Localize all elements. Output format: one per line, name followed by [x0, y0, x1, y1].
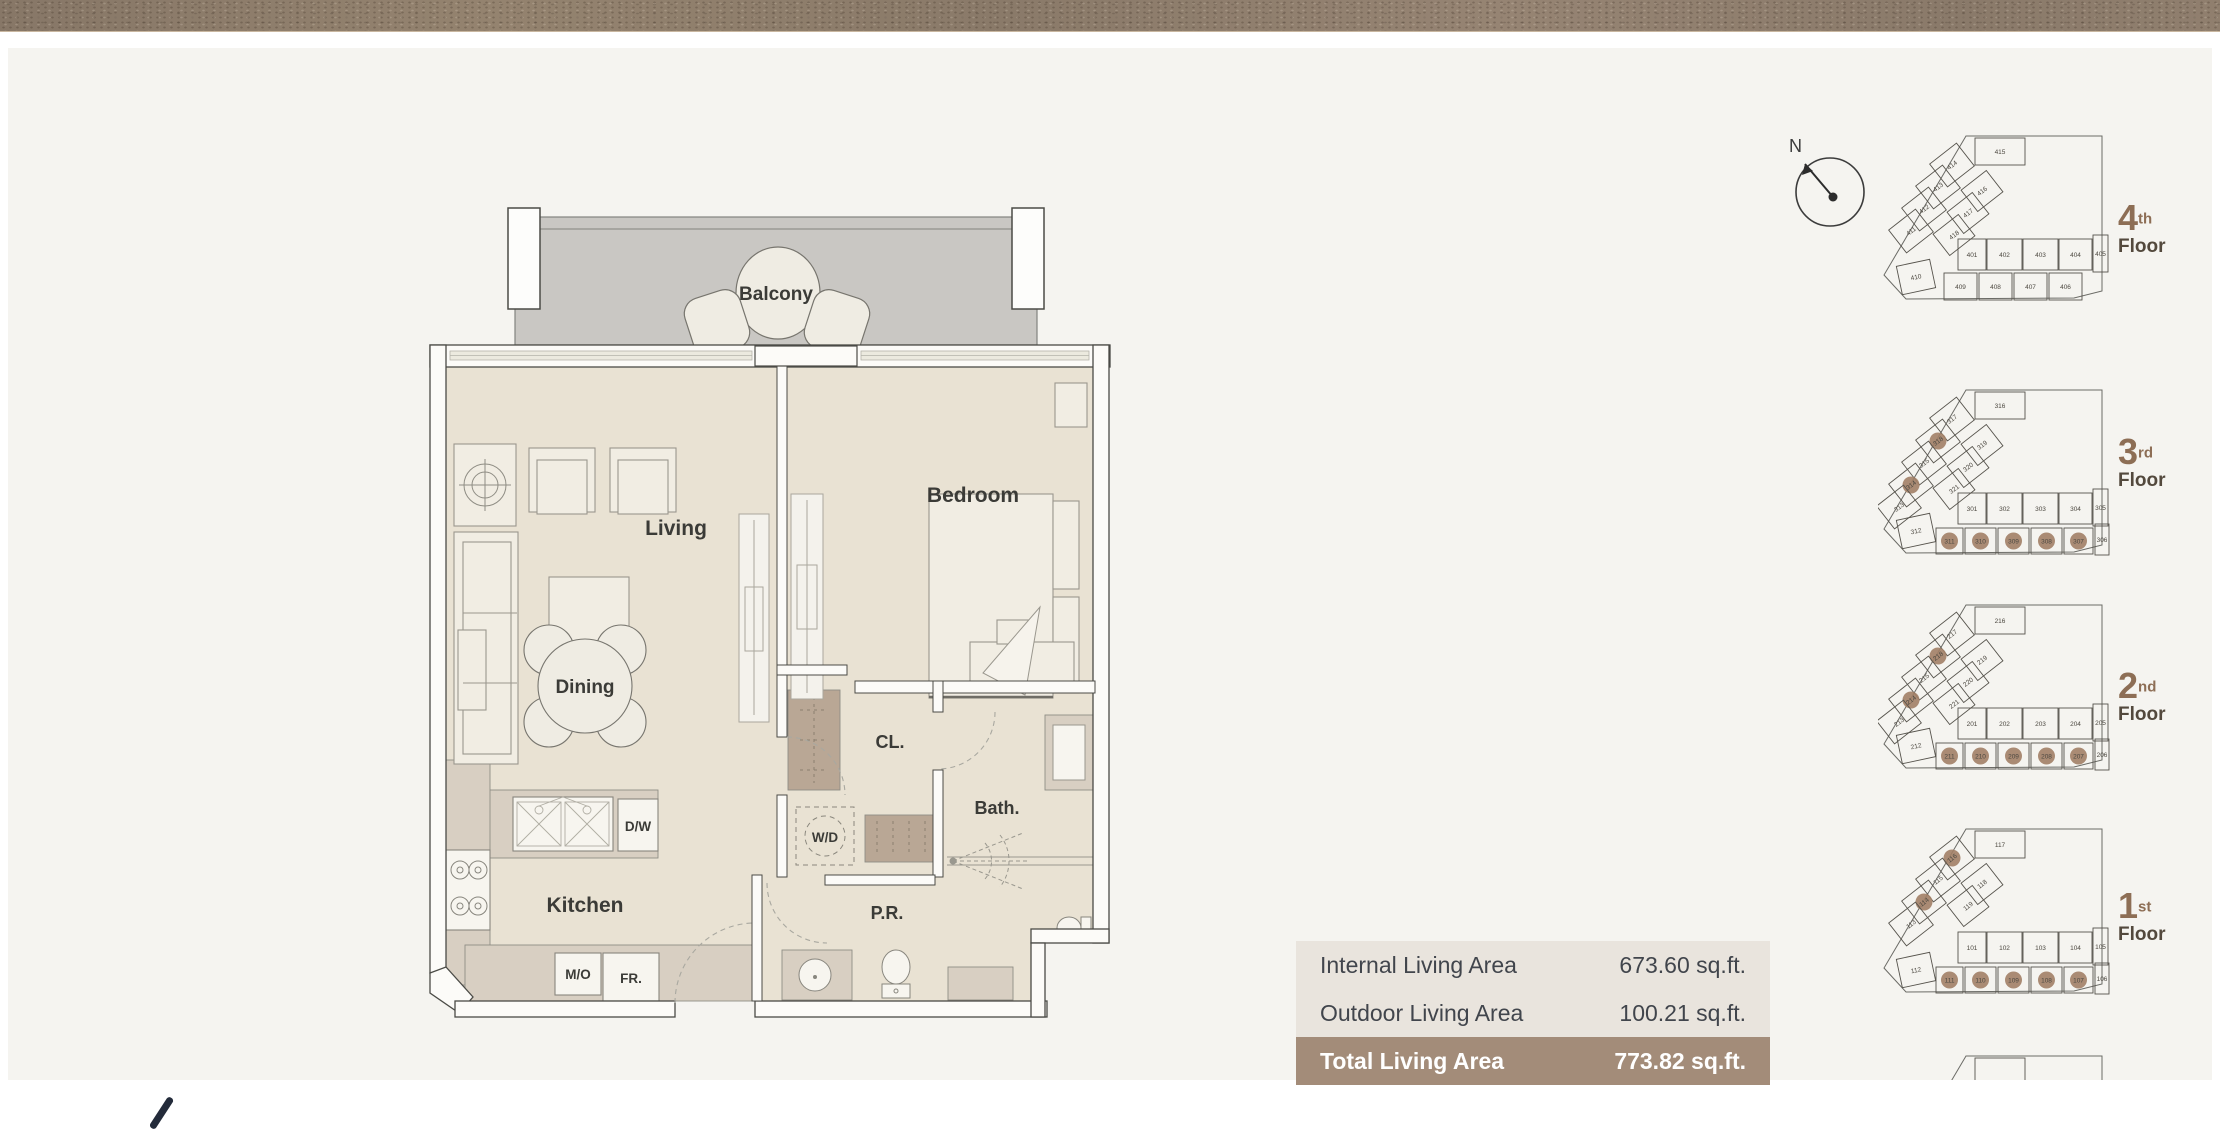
key-plan-unit: 211 [1936, 743, 1963, 769]
svg-text:216: 216 [1995, 618, 2006, 625]
key-plan-floor-partial [1878, 1048, 2110, 1080]
key-plan-unit: 412 [1902, 187, 1947, 231]
area-label: Internal Living Area [1320, 952, 1517, 979]
floor-label-2: 2nd Floor [2118, 668, 2218, 726]
wall-pr-west [752, 875, 762, 1001]
svg-text:202: 202 [1999, 721, 2010, 728]
key-plan-unit: 401 [1958, 239, 1986, 270]
svg-text:411: 411 [1905, 225, 1918, 237]
floor-suffix: th [2138, 211, 2152, 228]
sink-unit [513, 797, 613, 851]
svg-text:402: 402 [1999, 252, 2010, 259]
svg-text:320: 320 [1962, 461, 1975, 473]
key-plan-unit: 102 [1987, 932, 2022, 963]
key-plan-unit: 109 [1998, 967, 2029, 993]
key-plan-unit: 207 [2064, 743, 2093, 769]
svg-text:108: 108 [2041, 977, 2052, 984]
plan-sheet: Balcony [8, 48, 2212, 1080]
svg-text:107: 107 [2073, 977, 2084, 984]
area-value: 100.21 sq.ft. [1619, 1000, 1746, 1027]
area-value: 673.60 sq.ft. [1619, 952, 1746, 979]
svg-text:415: 415 [1995, 149, 2006, 156]
key-plan-unit: 114 [1902, 880, 1947, 924]
floor-word: Floor [2118, 704, 2218, 726]
key-plan-unit: 209 [1998, 743, 2029, 769]
wall-right [1093, 345, 1109, 943]
wd-label: W/D [812, 830, 838, 845]
svg-text:405: 405 [2095, 251, 2106, 258]
key-plan-boundary [1884, 1056, 2102, 1080]
svg-text:306: 306 [2097, 537, 2108, 544]
floor-number: 3 [2118, 431, 2138, 472]
key-plan-unit: 409 [1944, 273, 1977, 300]
key-plan-unit: 405 [2093, 235, 2108, 272]
key-plan-unit: 103 [2023, 932, 2058, 963]
key-plan-unit: 407 [2014, 273, 2047, 300]
area-label: Outdoor Living Area [1320, 1000, 1523, 1027]
key-plan-unit: 218 [1916, 634, 1961, 678]
bath-sink [1053, 725, 1085, 780]
floor-label-4: 4th Floor [2118, 200, 2218, 258]
svg-text:312: 312 [1910, 527, 1922, 536]
closet-rod-area-2 [865, 815, 937, 862]
floor-label-1: 1st Floor [2118, 888, 2218, 946]
wall-pr-north [825, 875, 935, 885]
svg-text:119: 119 [1962, 900, 1975, 912]
floor-suffix: st [2138, 899, 2151, 916]
dw-label: D/W [625, 819, 652, 834]
pr-toilet [882, 950, 910, 998]
key-plan-unit: 101 [1958, 932, 1986, 963]
table-row: Outdoor Living Area 100.21 sq.ft. [1296, 989, 1770, 1037]
svg-text:417: 417 [1962, 207, 1975, 219]
bath-floor-strip [948, 967, 1013, 1000]
key-plan-unit: 105 [2093, 928, 2108, 965]
wall-living-south [777, 665, 847, 675]
key-plan-unit: 408 [1979, 273, 2012, 300]
pillow-1 [1053, 501, 1079, 589]
svg-text:104: 104 [2070, 945, 2081, 952]
svg-text:317: 317 [1946, 413, 1959, 425]
table-row: Internal Living Area 673.60 sq.ft. [1296, 941, 1770, 989]
svg-text:220: 220 [1962, 676, 1975, 688]
key-plan-unit: 108 [2031, 967, 2062, 993]
wall-bedroom-south [855, 681, 1095, 693]
floor-word: Floor [2118, 236, 2218, 258]
key-plan-unit: 403 [2023, 239, 2058, 270]
key-plan-unit: 302 [1987, 493, 2022, 524]
svg-text:313: 313 [1893, 501, 1906, 513]
svg-text:305: 305 [2095, 505, 2106, 512]
wall-bottom-left [455, 1001, 675, 1017]
key-plan-floor-4: 4154144134124114104164174184014024034044… [1878, 128, 2110, 305]
table-row-total: Total Living Area 773.82 sq.ft. [1296, 1037, 1770, 1085]
svg-text:215: 215 [1918, 672, 1931, 684]
svg-text:105: 105 [2095, 944, 2106, 951]
svg-text:414: 414 [1946, 159, 1959, 171]
svg-text:203: 203 [2035, 721, 2046, 728]
wall-step-v [1031, 943, 1045, 1017]
bedroom-label: Bedroom [927, 484, 1019, 507]
floor-word: Floor [2118, 924, 2218, 946]
key-plan-unit: 204 [2059, 708, 2092, 739]
key-plan-unit: 305 [2093, 489, 2108, 526]
key-plan-unit: 112 [1896, 952, 1935, 987]
svg-text:403: 403 [2035, 252, 2046, 259]
floor-label-3: 3rd Floor [2118, 434, 2218, 492]
svg-text:112: 112 [1910, 966, 1922, 975]
svg-text:205: 205 [2095, 720, 2106, 727]
header-texture-band [0, 0, 2220, 32]
key-plan-unit: 307 [2064, 528, 2093, 554]
svg-text:212: 212 [1910, 742, 1922, 751]
svg-text:309: 309 [2008, 538, 2019, 545]
svg-text:210: 210 [1975, 753, 1986, 760]
key-plan-unit: 208 [2031, 743, 2062, 769]
wall-step-h [1031, 929, 1109, 943]
svg-text:407: 407 [2025, 284, 2036, 291]
svg-text:307: 307 [2073, 538, 2084, 545]
area-table: Internal Living Area 673.60 sq.ft. Outdo… [1296, 941, 1770, 1085]
corner-mark [149, 1096, 174, 1130]
svg-text:315: 315 [1918, 457, 1931, 469]
key-plan-unit: 312 [1896, 513, 1935, 548]
key-plan-unit: 314 [1889, 463, 1934, 507]
area-label: Total Living Area [1320, 1048, 1504, 1075]
wall-left [430, 345, 446, 973]
balcony-area: Balcony [508, 208, 1044, 360]
nightstand [1055, 383, 1087, 427]
key-plan-unit: 309 [1998, 528, 2029, 554]
wall-divider [777, 365, 787, 665]
wall-cl-left [777, 795, 787, 877]
svg-text:207: 207 [2073, 753, 2084, 760]
key-plan-floor-1: 1171161151141131121181191011021031041051… [1878, 821, 2110, 998]
svg-text:101: 101 [1967, 945, 1978, 952]
wall-cl-bath-lower [933, 770, 943, 877]
svg-text:310: 310 [1975, 538, 1986, 545]
wall-bottom-right [755, 1001, 1047, 1017]
key-plan-unit: 311 [1936, 528, 1963, 554]
key-plan-floor-3: 3163173183153143133123193203213013023033… [1878, 382, 2110, 559]
svg-text:221: 221 [1948, 698, 1961, 710]
svg-text:412: 412 [1918, 203, 1931, 215]
floor-number: 1 [2118, 885, 2138, 926]
svg-text:110: 110 [1975, 977, 1986, 984]
key-plan-unit: 205 [2093, 704, 2108, 741]
svg-text:113: 113 [1905, 918, 1918, 930]
svg-text:201: 201 [1967, 721, 1978, 728]
key-plan-unit: 301 [1958, 493, 1986, 524]
key-plan-unit: 201 [1958, 708, 1986, 739]
svg-text:321: 321 [1948, 483, 1961, 495]
svg-text:102: 102 [1999, 945, 2010, 952]
compass: N [1775, 130, 1885, 240]
svg-text:106: 106 [2097, 976, 2108, 983]
svg-text:115: 115 [1932, 874, 1945, 886]
key-plan-unit: 210 [1965, 743, 1996, 769]
bath-label: Bath. [975, 798, 1020, 818]
wall-cl-bath-upper [933, 681, 943, 712]
floor-suffix: nd [2138, 679, 2156, 696]
svg-text:404: 404 [2070, 252, 2081, 259]
fr-label: FR. [620, 971, 642, 986]
balcony-pier-left [508, 208, 540, 309]
svg-text:303: 303 [2035, 506, 2046, 513]
key-plan-unit: 318 [1916, 419, 1961, 463]
svg-text:206: 206 [2097, 752, 2108, 759]
svg-text:409: 409 [1955, 284, 1966, 291]
console [458, 630, 486, 710]
key-plan-unit: 411 [1889, 209, 1934, 253]
key-plan-unit: 304 [2059, 493, 2092, 524]
key-plan-unit: 303 [2023, 493, 2058, 524]
svg-text:111: 111 [1945, 977, 1955, 984]
floor-suffix: rd [2138, 445, 2153, 462]
wall-divider-lower [777, 675, 787, 737]
svg-text:219: 219 [1976, 654, 1989, 666]
key-plan-unit: 212 [1896, 728, 1935, 763]
pr-label: P.R. [871, 903, 904, 923]
unit-floor-plan: Balcony [425, 205, 1115, 1020]
floor-number: 4 [2118, 197, 2138, 238]
svg-text:209: 209 [2008, 753, 2019, 760]
svg-text:406: 406 [2060, 284, 2071, 291]
key-plan-floor-2: 2162172182152142132122192202212012022032… [1878, 597, 2110, 774]
closet-label: CL. [876, 732, 905, 752]
mo-label: M/O [565, 967, 591, 982]
key-plan-unit: 110 [1965, 967, 1996, 993]
area-value: 773.82 sq.ft. [1614, 1048, 1746, 1075]
key-plan-unit: 410 [1896, 259, 1935, 294]
svg-text:117: 117 [1995, 842, 2006, 849]
svg-text:408: 408 [1990, 284, 2001, 291]
svg-text:319: 319 [1976, 439, 1989, 451]
svg-text:217: 217 [1946, 628, 1959, 640]
key-plan-unit: 310 [1965, 528, 1996, 554]
kitchen-label: Kitchen [546, 894, 623, 917]
svg-text:413: 413 [1932, 181, 1945, 193]
compass-north-label: N [1789, 136, 1802, 156]
key-plan-unit: 406 [2049, 273, 2082, 300]
key-plan-unit: 214 [1889, 678, 1934, 722]
stove [446, 850, 490, 930]
svg-text:316: 316 [1995, 403, 2006, 410]
svg-text:418: 418 [1948, 229, 1961, 241]
svg-text:213: 213 [1893, 716, 1906, 728]
floor-word: Floor [2118, 470, 2218, 492]
key-plan-unit: 402 [1987, 239, 2022, 270]
svg-text:118: 118 [1976, 878, 1989, 890]
svg-text:304: 304 [2070, 506, 2081, 513]
key-plan-unit: 404 [2059, 239, 2092, 270]
balcony-label: Balcony [739, 284, 813, 305]
svg-text:109: 109 [2008, 977, 2019, 984]
key-plan-unit: 413 [1916, 165, 1961, 209]
balcony-pier-right [1012, 208, 1044, 309]
svg-text:103: 103 [2035, 945, 2046, 952]
svg-text:311: 311 [1944, 538, 1955, 545]
svg-text:211: 211 [1944, 753, 1955, 760]
svg-text:308: 308 [2041, 538, 2052, 545]
svg-text:416: 416 [1976, 185, 1989, 197]
key-plan-unit: 414 [1930, 143, 1975, 187]
key-plan-unit: 202 [1987, 708, 2022, 739]
svg-text:302: 302 [1999, 506, 2010, 513]
key-plan-unit: 203 [2023, 708, 2058, 739]
svg-text:401: 401 [1967, 252, 1978, 259]
svg-text:204: 204 [2070, 721, 2081, 728]
svg-text:301: 301 [1967, 506, 1978, 513]
dining-label: Dining [555, 677, 614, 698]
key-plan-unit: 308 [2031, 528, 2062, 554]
living-label: Living [645, 517, 707, 540]
svg-text:410: 410 [1910, 273, 1922, 282]
key-plan-unit: 116 [1930, 836, 1975, 880]
floor-number: 2 [2118, 665, 2138, 706]
key-plan-unit: 111 [1936, 967, 1963, 993]
svg-text:208: 208 [2041, 753, 2052, 760]
key-plan-unit: 104 [2059, 932, 2092, 963]
key-plan-unit: 107 [2064, 967, 2093, 993]
